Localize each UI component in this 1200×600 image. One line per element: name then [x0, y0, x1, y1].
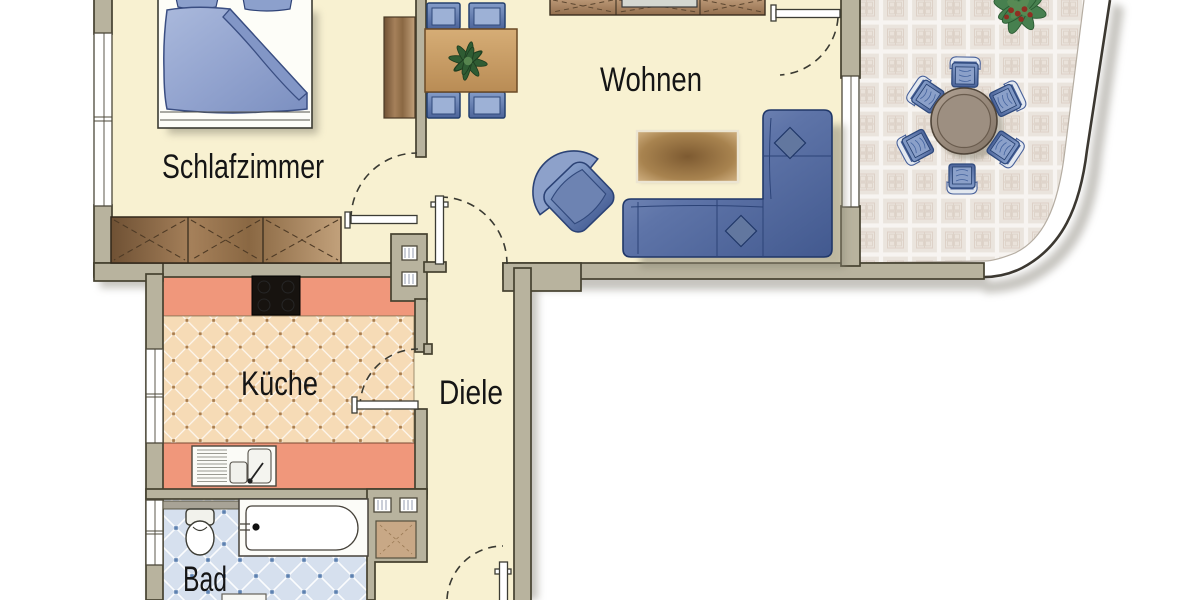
svg-text:Wohnen: Wohnen [600, 61, 702, 99]
svg-text:Bad: Bad [183, 560, 227, 599]
svg-text:Küche: Küche [241, 365, 318, 403]
svg-text:Schlafzimmer: Schlafzimmer [162, 148, 324, 186]
svg-text:Diele: Diele [439, 374, 503, 412]
